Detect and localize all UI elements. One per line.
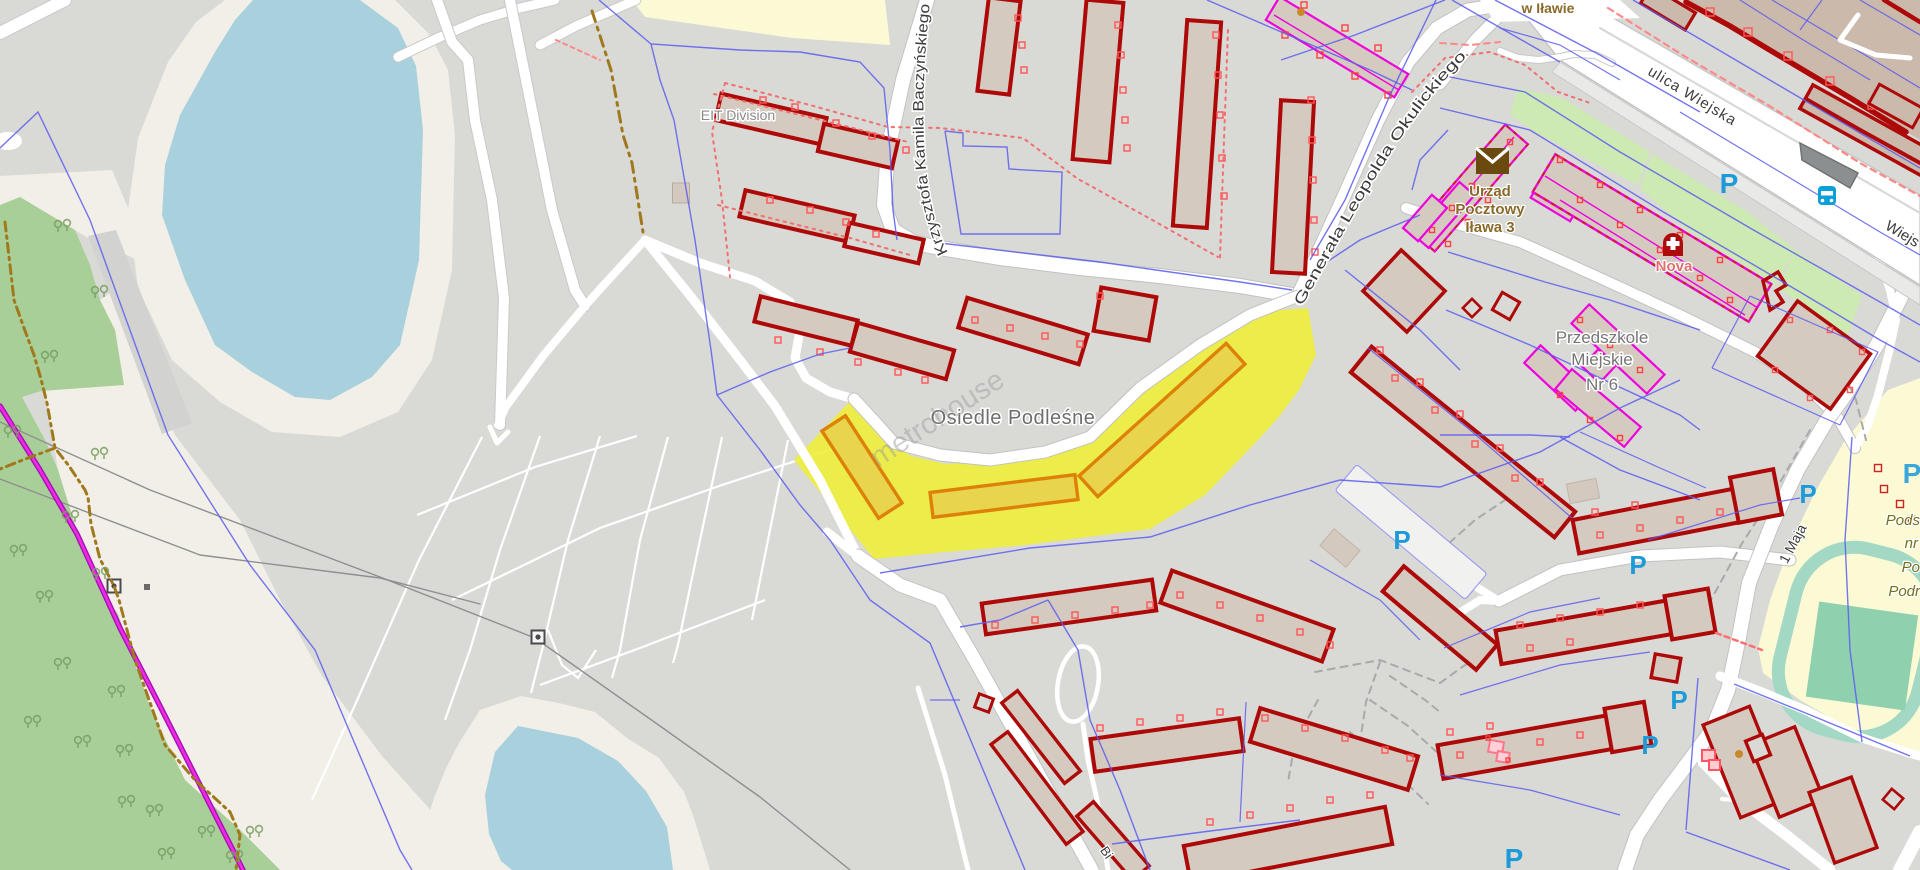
svg-text:w Iławie: w Iławie (1521, 0, 1575, 16)
svg-text:P: P (1799, 479, 1816, 509)
svg-text:Pods: Pods (1886, 512, 1920, 529)
svg-text:nr: nr (1905, 535, 1919, 552)
svg-text:P: P (1670, 685, 1687, 715)
svg-text:EIT Division: EIT Division (701, 107, 775, 123)
svg-text:Po: Po (1902, 559, 1920, 576)
svg-text:Podr: Podr (1888, 583, 1920, 600)
svg-text:P: P (1629, 550, 1646, 580)
svg-text:P: P (1903, 458, 1920, 489)
svg-text:P: P (1641, 730, 1658, 760)
svg-text:Iława 3: Iława 3 (1465, 219, 1514, 236)
svg-text:Miejskie: Miejskie (1571, 350, 1632, 369)
svg-text:P: P (1393, 525, 1410, 555)
svg-text:P: P (1720, 168, 1739, 199)
svg-text:P: P (1505, 843, 1524, 870)
svg-text:Pocztowy: Pocztowy (1455, 201, 1525, 218)
svg-text:Nova: Nova (1656, 258, 1693, 275)
svg-text:Urząd: Urząd (1469, 183, 1511, 200)
svg-text:Przedszkole: Przedszkole (1556, 328, 1649, 347)
svg-text:Nr 6: Nr 6 (1586, 375, 1618, 394)
